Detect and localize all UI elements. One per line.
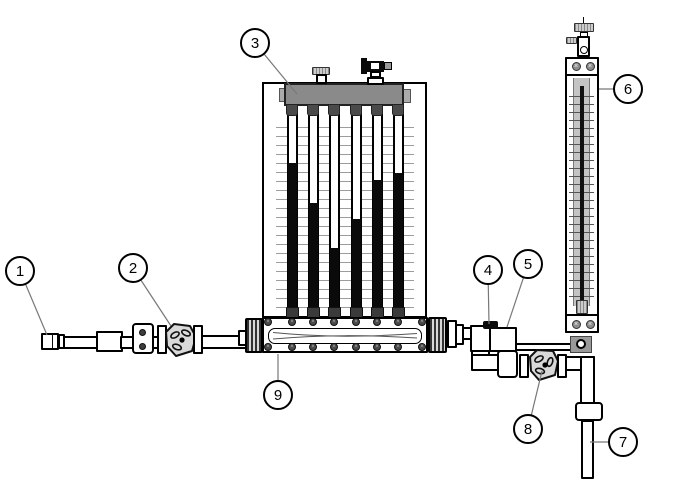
callout-discharge-control-valve: 8 — [513, 414, 543, 444]
callout-tee-to-flowmeter-pipe: 5 — [513, 249, 543, 279]
callout-number: 5 — [524, 256, 532, 273]
callout-leader-lines — [0, 0, 680, 488]
callout-venturi-test-section: 9 — [263, 380, 293, 410]
callout-outlet-pipe: 7 — [608, 427, 638, 457]
callout-number: 9 — [274, 387, 282, 404]
callout-number: 4 — [484, 262, 492, 279]
callout-flowmeter-tube: 6 — [613, 74, 643, 104]
callout-discharge-tee-plug: 4 — [473, 255, 503, 285]
callout-number: 8 — [524, 421, 532, 438]
apparatus-diagram: ×××××××××××××××× ×××× 123456789 — [0, 0, 680, 488]
callout-number: 1 — [16, 263, 24, 280]
callout-number: 3 — [251, 35, 259, 52]
callout-number: 6 — [624, 81, 632, 98]
callout-number: 2 — [129, 260, 137, 277]
callout-manometer-manifold: 3 — [240, 28, 270, 58]
callout-number: 7 — [619, 434, 627, 451]
callout-inlet-control-valve: 2 — [118, 253, 148, 283]
callout-supply-hose-connector: 1 — [5, 256, 35, 286]
